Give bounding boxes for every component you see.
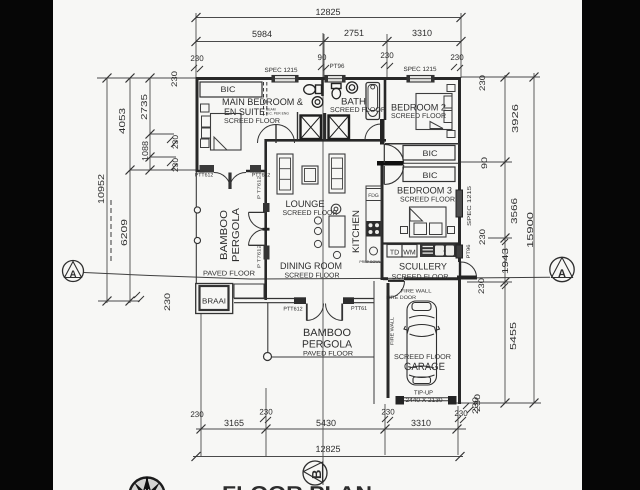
- svg-text:FIRE WALL: FIRE WALL: [401, 289, 432, 295]
- svg-text:EN SUITE: EN SUITE: [224, 107, 265, 118]
- svg-text:WM: WM: [403, 250, 416, 257]
- svg-text:TIP-UP: TIP-UP: [414, 390, 433, 397]
- svg-text:FIRE DOOR: FIRE DOOR: [386, 295, 416, 301]
- svg-text:P T7612: P T7612: [257, 175, 262, 199]
- svg-text:PTT612: PTT612: [195, 173, 214, 179]
- svg-text:230: 230: [478, 228, 487, 245]
- svg-text:15900: 15900: [525, 212, 535, 248]
- svg-text:PAVED FLOOR: PAVED FLOOR: [203, 271, 255, 278]
- svg-text:230: 230: [171, 157, 180, 172]
- svg-text:PERGOLA: PERGOLA: [302, 339, 352, 351]
- svg-text:2735: 2735: [139, 94, 149, 120]
- svg-text:6209: 6209: [119, 219, 129, 246]
- svg-text:4053: 4053: [117, 108, 127, 134]
- svg-text:LOUNGE: LOUNGE: [286, 199, 325, 210]
- svg-text:230: 230: [170, 70, 179, 87]
- svg-text:TD: TD: [390, 250, 399, 257]
- svg-text:5430: 5430: [316, 418, 336, 428]
- svg-text:BEDROOM 3: BEDROOM 3: [397, 186, 452, 197]
- svg-text:P T7612: P T7612: [257, 244, 262, 268]
- svg-text:230: 230: [471, 396, 480, 414]
- svg-text:FLOOR PLAN: FLOOR PLAN: [222, 483, 372, 490]
- svg-text:PT96: PT96: [330, 63, 345, 70]
- svg-text:B: B: [309, 470, 324, 479]
- svg-text:230: 230: [190, 54, 204, 63]
- svg-text:PERGOLA: PERGOLA: [231, 208, 242, 262]
- svg-text:BATH: BATH: [341, 97, 366, 108]
- svg-text:SCREED FLOOR: SCREED FLOOR: [224, 118, 280, 125]
- svg-text:FDG: FDG: [368, 193, 379, 199]
- svg-text:10952: 10952: [96, 174, 106, 204]
- svg-text:GARAGE: GARAGE: [404, 361, 445, 373]
- svg-text:BEDROOM 2: BEDROOM 2: [391, 103, 446, 114]
- svg-text:A: A: [70, 269, 77, 280]
- svg-text:230: 230: [454, 409, 468, 418]
- svg-text:SCREED FLOOR: SCREED FLOOR: [285, 273, 340, 280]
- svg-text:PTT612: PTT612: [283, 307, 302, 313]
- svg-text:SCREED FLOOR: SCREED FLOOR: [400, 197, 455, 204]
- svg-text:SCREED FLOOR: SCREED FLOOR: [391, 113, 446, 120]
- svg-text:3926: 3926: [510, 104, 520, 133]
- svg-text:PREP BOWL: PREP BOWL: [359, 260, 380, 264]
- svg-text:BAMBOO: BAMBOO: [303, 327, 351, 339]
- svg-text:PAVED FLOOR: PAVED FLOOR: [303, 351, 353, 358]
- svg-text:BIC: BIC: [221, 85, 236, 94]
- svg-text:BIC: BIC: [423, 149, 438, 158]
- svg-text:230: 230: [478, 74, 487, 91]
- svg-text:230: 230: [163, 292, 172, 311]
- svg-text:A: A: [558, 268, 566, 280]
- svg-text:3165: 3165: [224, 418, 244, 428]
- svg-text:230: 230: [380, 51, 394, 60]
- svg-text:90: 90: [480, 156, 489, 169]
- svg-text:230: 230: [190, 410, 204, 419]
- svg-text:SCREED FLOOR: SCREED FLOOR: [330, 107, 386, 114]
- svg-text:12825: 12825: [315, 7, 340, 17]
- svg-text:230: 230: [381, 408, 395, 417]
- svg-text:KITCHEN: KITCHEN: [351, 210, 362, 253]
- svg-text:3310: 3310: [412, 28, 432, 38]
- svg-text:90: 90: [318, 53, 327, 62]
- svg-text:230: 230: [171, 134, 180, 149]
- svg-text:SCREED FLOOR: SCREED FLOOR: [392, 274, 449, 281]
- svg-text:FIRE WALL: FIRE WALL: [390, 317, 395, 346]
- svg-text:5984: 5984: [252, 29, 272, 39]
- svg-text:230: 230: [477, 277, 486, 294]
- svg-text:SPEC 1215: SPEC 1215: [265, 67, 299, 74]
- svg-text:12825: 12825: [315, 444, 340, 454]
- svg-text:2440 X 2130: 2440 X 2130: [406, 397, 444, 404]
- svg-text:1088: 1088: [140, 141, 150, 161]
- svg-text:BAMBOO: BAMBOO: [219, 210, 230, 260]
- svg-text:SPEC 1215: SPEC 1215: [467, 186, 473, 226]
- svg-text:3310: 3310: [411, 418, 431, 428]
- svg-text:DINING ROOM: DINING ROOM: [280, 261, 342, 272]
- svg-text:2751: 2751: [344, 28, 364, 38]
- svg-text:1943: 1943: [500, 248, 510, 274]
- svg-text:BRAAI: BRAAI: [202, 297, 226, 306]
- svg-text:BIC: BIC: [423, 171, 438, 180]
- svg-text:230: 230: [259, 408, 273, 417]
- svg-text:SCREED FLOOR: SCREED FLOOR: [394, 354, 451, 361]
- svg-text:H.C. PER ENG: H.C. PER ENG: [266, 112, 289, 116]
- svg-text:230: 230: [450, 53, 464, 62]
- svg-text:PT96: PT96: [466, 244, 472, 258]
- svg-text:PTT61: PTT61: [351, 306, 367, 312]
- svg-text:5455: 5455: [508, 322, 518, 350]
- svg-text:SPEC 1215: SPEC 1215: [404, 66, 438, 73]
- svg-text:3566: 3566: [509, 198, 519, 224]
- svg-text:SCULLERY: SCULLERY: [399, 262, 448, 273]
